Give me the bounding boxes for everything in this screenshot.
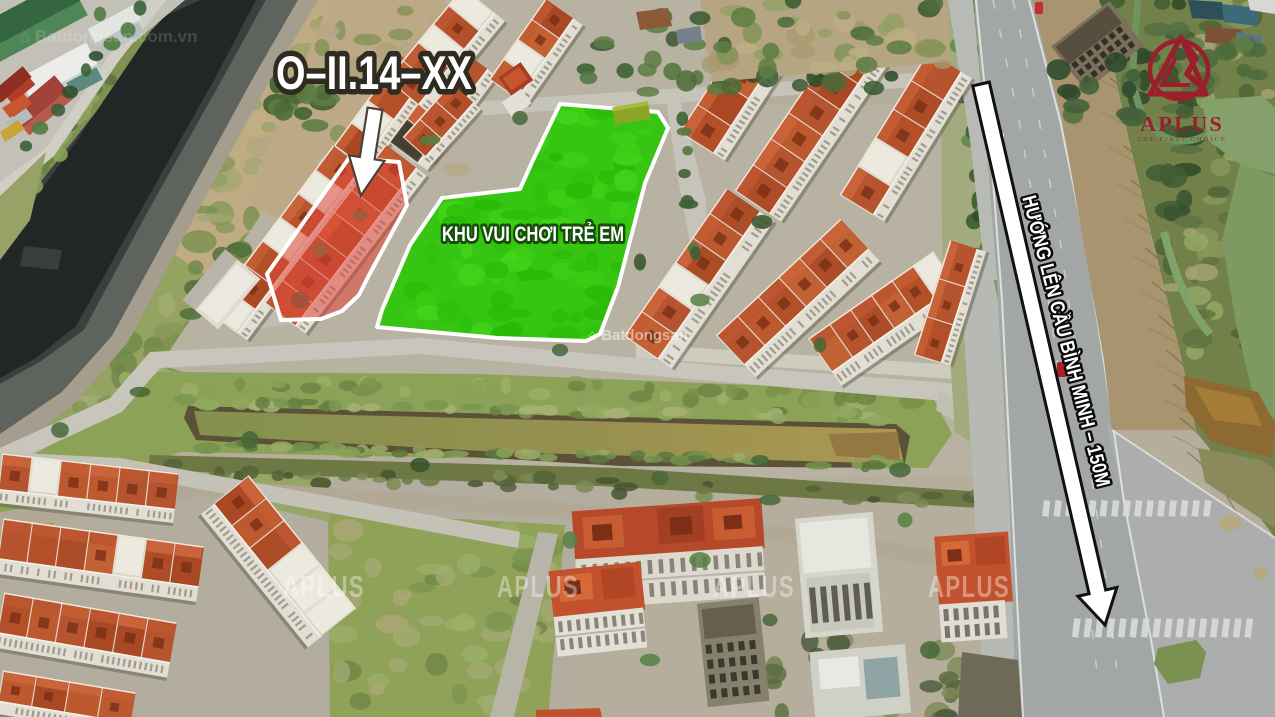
svg-text:⌂ Batdongsan: ⌂ Batdongsan bbox=[588, 327, 688, 344]
svg-text:O–II.14–XX: O–II.14–XX bbox=[276, 46, 472, 99]
svg-text:⌂ Batdongsan.com.vn: ⌂ Batdongsan.com.vn bbox=[20, 27, 197, 46]
svg-text:APLUS: APLUS bbox=[1140, 112, 1224, 136]
svg-text:THE FIRST CHOICE: THE FIRST CHOICE bbox=[1137, 136, 1227, 143]
svg-text:APLUS: APLUS bbox=[283, 569, 365, 604]
svg-text:APLUS: APLUS bbox=[928, 569, 1010, 604]
svg-text:APLUS: APLUS bbox=[713, 569, 795, 604]
svg-text:KHU VUI CHƠI TRẺ EM: KHU VUI CHƠI TRẺ EM bbox=[442, 223, 624, 246]
svg-text:APLUS: APLUS bbox=[497, 569, 579, 604]
